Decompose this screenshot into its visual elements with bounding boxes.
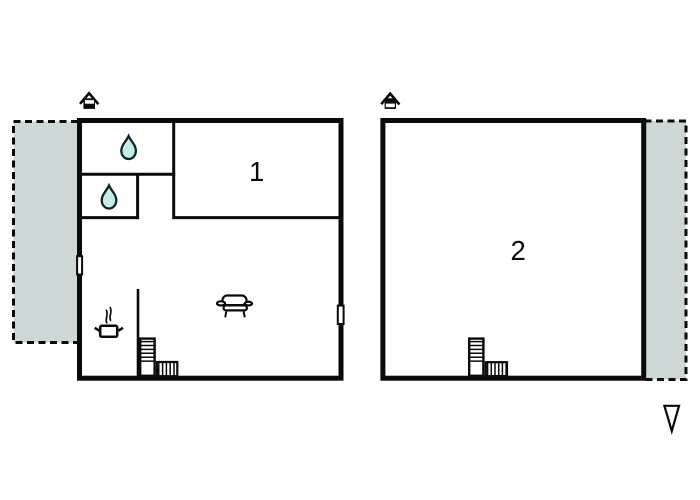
svg-text:1: 1 [249,156,264,187]
svg-text:2: 2 [511,235,526,266]
